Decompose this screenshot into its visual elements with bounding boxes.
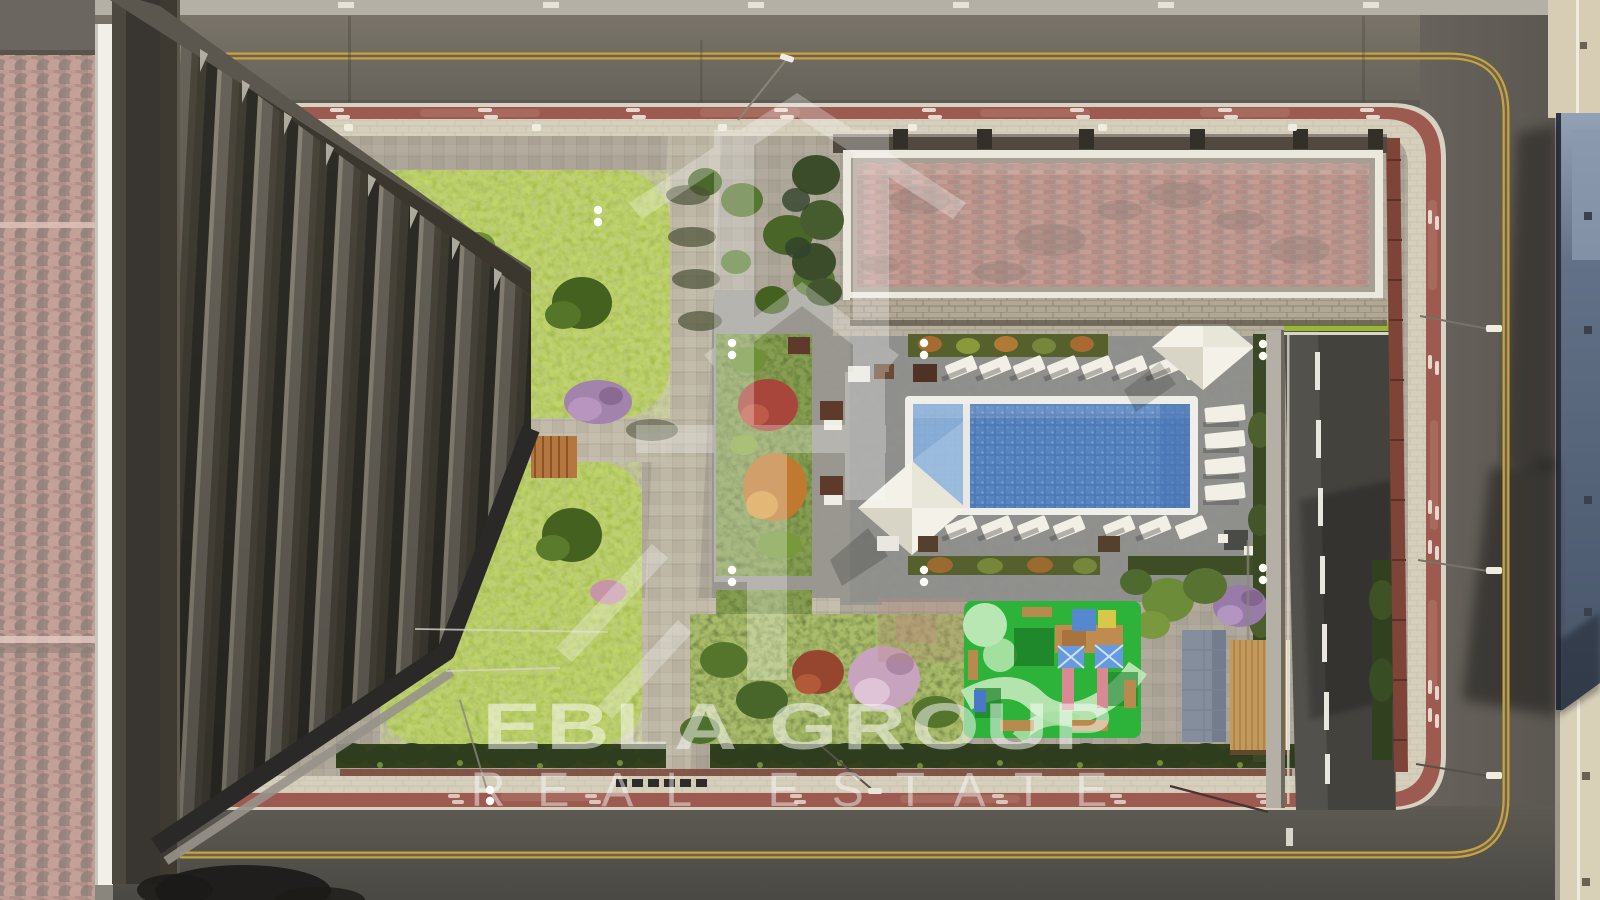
svg-text:REAL ESTATE: REAL ESTATE — [471, 764, 1140, 817]
svg-text:EBLA GROUP: EBLA GROUP — [482, 690, 1117, 763]
